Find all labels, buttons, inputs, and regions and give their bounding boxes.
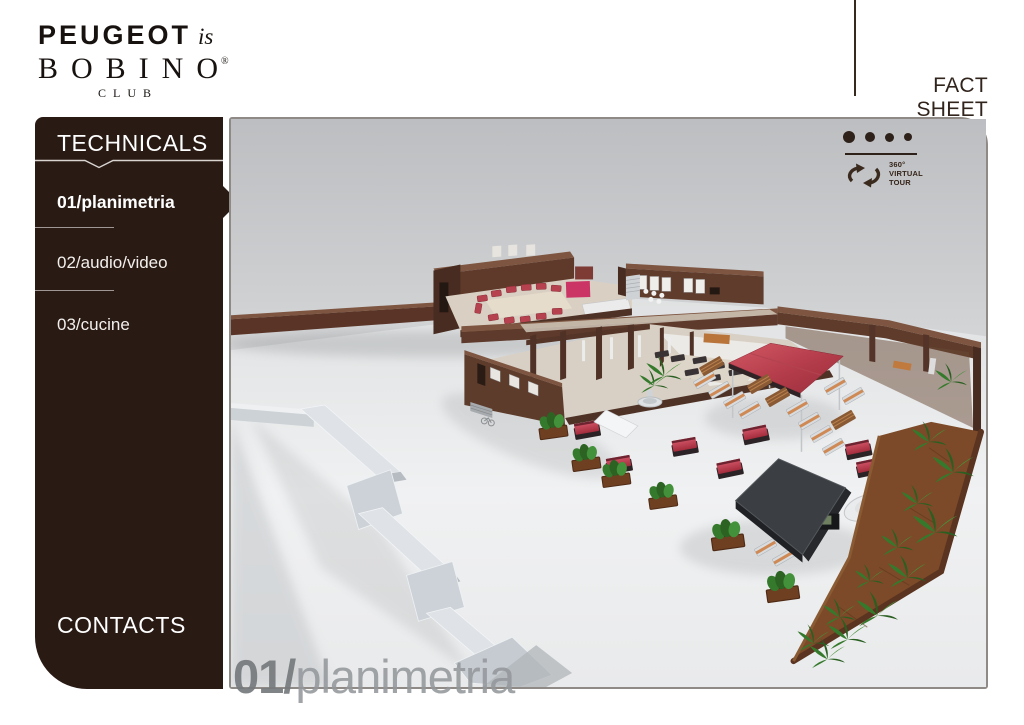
tour-line-tour: TOUR [889, 178, 923, 187]
sidebar-title: TECHNICALS [57, 130, 208, 157]
sidebar-separator [35, 290, 114, 291]
registered-mark: ® [221, 56, 229, 67]
logo-club-name: BOBINO [38, 52, 231, 85]
sidebar-item-audio-video[interactable]: 02/audio/video [57, 253, 168, 273]
chevron-down-icon [35, 157, 223, 171]
virtual-tour-button[interactable]: 360° VIRTUAL TOUR [843, 160, 923, 190]
tour-line-360: 360° [889, 160, 923, 169]
peugeot-bobino-logo: PEUGEOTis BOBINO® CLUB [38, 20, 229, 101]
watermark-name: planimetria [295, 650, 514, 703]
tour-divider [845, 153, 917, 155]
logo-club-line: BOBINO® [38, 52, 229, 86]
floorplan-viewer: 360° VIRTUAL TOUR 01/planimetria [229, 117, 988, 689]
pagination-dot-active[interactable] [843, 131, 855, 143]
logo-brand-line: PEUGEOTis [38, 20, 229, 51]
rotate-360-icon [843, 160, 885, 190]
pagination-dot[interactable] [865, 132, 875, 142]
watermark-number: 01/ [233, 650, 295, 703]
logo-club-sub: CLUB [98, 86, 229, 101]
pagination-dots[interactable] [843, 131, 912, 143]
floorplan-3d-render [231, 119, 986, 687]
pagination-dot[interactable] [885, 133, 894, 142]
pagination-dot[interactable] [904, 133, 912, 141]
sidebar-separator [35, 227, 114, 228]
fact-sheet-page: PEUGEOTis BOBINO® CLUB FACT SHEET TECHNI… [0, 0, 1024, 725]
logo-script: is [198, 24, 213, 49]
logo-brand: PEUGEOT [38, 20, 191, 50]
section-watermark: 01/planimetria [233, 653, 514, 700]
sidebar-item-planimetria[interactable]: 01/planimetria [57, 192, 175, 213]
sidebar-item-contacts[interactable]: CONTACTS [57, 612, 186, 639]
technicals-sidebar: TECHNICALS 01/planimetria 02/audio/video… [35, 117, 223, 689]
tour-line-virtual: VIRTUAL [889, 169, 923, 178]
fact-sheet-title: FACT SHEET [856, 74, 988, 122]
sidebar-item-cucine[interactable]: 03/cucine [57, 315, 130, 335]
virtual-tour-label: 360° VIRTUAL TOUR [889, 160, 923, 187]
